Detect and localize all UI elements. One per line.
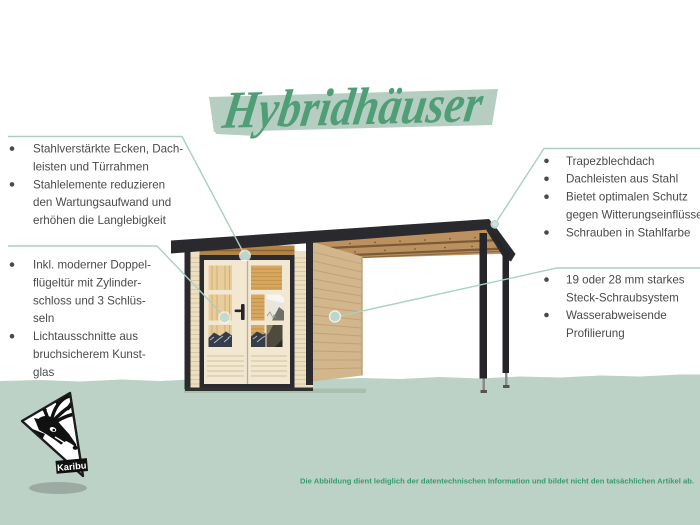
- svg-text:Inkl. moderner Doppel-: Inkl. moderner Doppel-: [33, 259, 151, 272]
- svg-text:Stahlelemente reduzieren: Stahlelemente reduzieren: [33, 178, 165, 191]
- svg-text:Lichtausschnitte aus: Lichtausschnitte aus: [33, 330, 138, 343]
- svg-text:Steck-Schraubsystem: Steck-Schraubsystem: [566, 291, 679, 304]
- svg-text:schloss und 3 Schlüs-: schloss und 3 Schlüs-: [33, 294, 146, 307]
- svg-text:Stahlverstärkte Ecken, Dach-: Stahlverstärkte Ecken, Dach-: [33, 143, 183, 156]
- svg-text:Trapezblechdach: Trapezblechdach: [566, 155, 655, 168]
- svg-text:seln: seln: [33, 312, 54, 325]
- svg-text:Wasserabweisende: Wasserabweisende: [566, 309, 667, 322]
- svg-text:19 oder 28 mm starkes: 19 oder 28 mm starkes: [566, 274, 685, 287]
- svg-text:Die Abbildung dient lediglich: Die Abbildung dient lediglich der datent…: [300, 477, 694, 486]
- svg-text:Hybridhäuser: Hybridhäuser: [218, 73, 488, 140]
- svg-text:flügeltür mit Zylinder-: flügeltür mit Zylinder-: [33, 276, 141, 289]
- svg-text:erhöhen die Langlebigkeit: erhöhen die Langlebigkeit: [33, 214, 167, 227]
- svg-text:leisten und Türrahmen: leisten und Türrahmen: [33, 160, 149, 173]
- svg-text:den Wartungsaufwand und: den Wartungsaufwand und: [33, 196, 171, 209]
- svg-text:gegen Witterungseinflüsse: gegen Witterungseinflüsse: [566, 209, 700, 222]
- svg-text:Profilierung: Profilierung: [566, 327, 625, 340]
- svg-text:Dachleisten aus Stahl: Dachleisten aus Stahl: [566, 173, 678, 186]
- svg-text:Bietet optimalen Schutz: Bietet optimalen Schutz: [566, 191, 688, 204]
- svg-text:bruchsicherem Kunst-: bruchsicherem Kunst-: [33, 348, 146, 361]
- svg-text:glas: glas: [33, 366, 54, 379]
- svg-text:Schrauben in Stahlfarbe: Schrauben in Stahlfarbe: [566, 226, 690, 239]
